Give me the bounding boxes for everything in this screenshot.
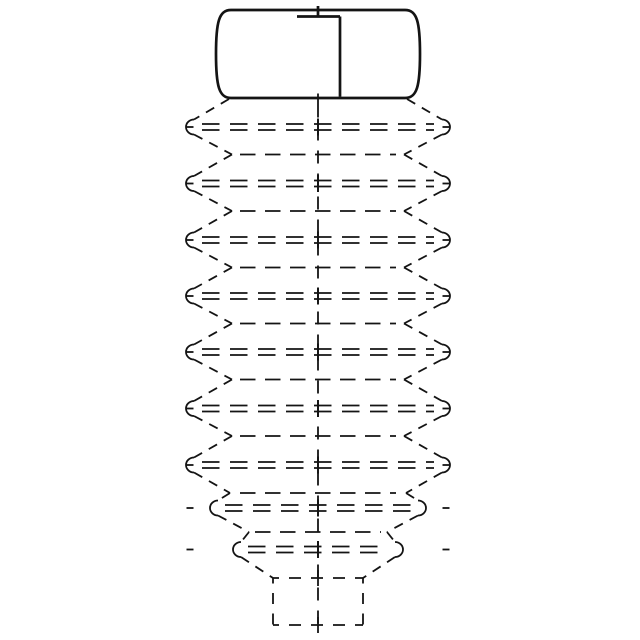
taper-rib-1-left-cap-arc [210,501,218,516]
fold-diagonal-right-12 [404,416,442,436]
fold-diagonal-right-2 [404,135,442,155]
fold-diagonal-left-3 [194,155,232,177]
fold-diagonal-left-18 [241,557,273,578]
engineering-drawing-canvas [0,0,640,640]
taper-rib-1-right-cap-arc [418,501,426,516]
fold-diagonal-left-15 [218,493,230,501]
hidden-line-geometry [186,6,450,633]
fold-diagonal-right-11 [404,380,442,402]
fold-diagonal-left-16 [218,516,249,533]
fold-diagonal-left-9 [194,324,232,345]
fold-diagonal-right-1 [407,99,442,120]
fold-diagonal-right-14 [406,473,442,494]
fold-diagonal-left-2 [194,135,232,155]
fold-diagonal-right-7 [404,268,442,289]
fold-diagonal-left-17 [241,532,249,542]
fold-diagonal-right-4 [404,191,442,211]
visible-cap-geometry [216,6,420,98]
fold-diagonal-right-8 [404,304,442,324]
fold-diagonal-left-8 [194,304,232,324]
fold-diagonal-right-10 [404,360,442,380]
fold-diagonal-right-16 [387,516,418,533]
fold-diagonal-left-5 [194,211,232,233]
fold-diagonal-left-7 [194,268,232,289]
fold-diagonal-right-6 [404,248,442,268]
fold-diagonal-left-13 [194,436,232,458]
drawing-page [0,0,640,640]
fold-diagonal-left-11 [194,380,232,402]
taper-rib-2-right-cap-arc [395,542,403,557]
taper-rib-2-left-cap-arc [233,542,241,557]
fold-diagonal-left-4 [194,191,232,211]
fold-diagonal-left-1 [194,99,229,120]
fold-diagonal-left-10 [194,360,232,380]
fold-diagonal-right-18 [363,557,395,578]
fold-diagonal-right-5 [404,211,442,233]
fold-diagonal-left-12 [194,416,232,436]
fold-diagonal-left-6 [194,248,232,268]
fold-diagonal-right-13 [404,436,442,458]
fold-diagonal-right-3 [404,155,442,177]
fold-diagonal-left-14 [194,473,230,494]
fold-diagonal-right-15 [406,493,418,501]
cap-outline [216,10,420,98]
fold-diagonal-right-17 [387,532,395,542]
fold-diagonal-right-9 [404,324,442,345]
